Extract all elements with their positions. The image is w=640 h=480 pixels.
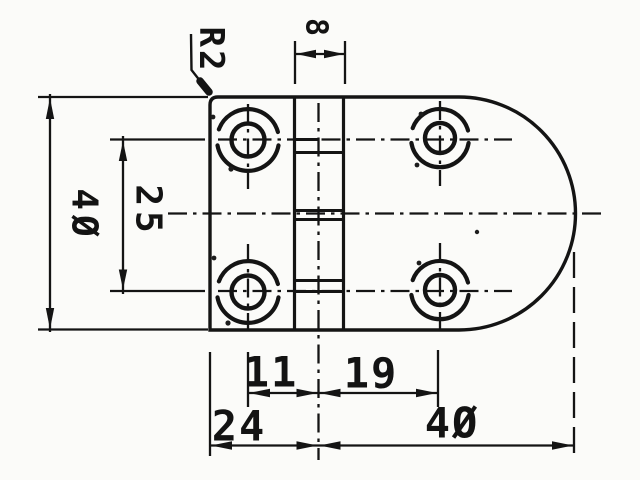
dimension-arrow [320,389,341,397]
dimension-arrow [320,441,341,449]
dimension-arrow [297,441,318,449]
dimension-arrow [552,441,573,449]
dim-hole-columns: 11 19 [244,348,438,408]
dimension-label-r2: R2 [191,27,231,74]
dimension-label-8: 8 [299,18,334,36]
noise-speck [417,261,422,266]
dim-hole-pitch: 25 [110,136,205,294]
radius-callout: R2 [191,27,231,92]
dimension-label-40-vertical: 4Ø [64,188,105,241]
noise-speck [228,166,233,171]
noise-speck [225,320,230,325]
dimension-arrow [324,50,344,58]
noise-speck [475,230,479,234]
leader-dot [200,81,209,92]
drawing-sheet: R2 8 4Ø 25 11 19 [0,0,640,480]
dimension-label-40-horizontal: 4Ø [425,399,480,448]
dimension-label-19: 19 [344,349,399,398]
noise-speck [211,115,216,120]
dimension-arrow [119,270,127,290]
dimension-arrow [296,50,316,58]
dimension-arrow [297,389,318,397]
hinge-technical-drawing: R2 8 4Ø 25 11 19 [0,0,640,480]
dimension-label-24: 24 [212,402,267,451]
dimension-label-25: 25 [128,184,169,237]
dimension-arrow [46,308,54,329]
dimension-arrow [119,141,127,161]
dimension-arrow [416,389,437,397]
noise-speck [419,112,424,117]
noise-speck [415,163,420,168]
noise-speck [212,256,217,261]
dim-pin-width: 8 [295,18,345,84]
dimension-arrow [46,98,54,119]
dimension-label-11: 11 [244,348,299,397]
